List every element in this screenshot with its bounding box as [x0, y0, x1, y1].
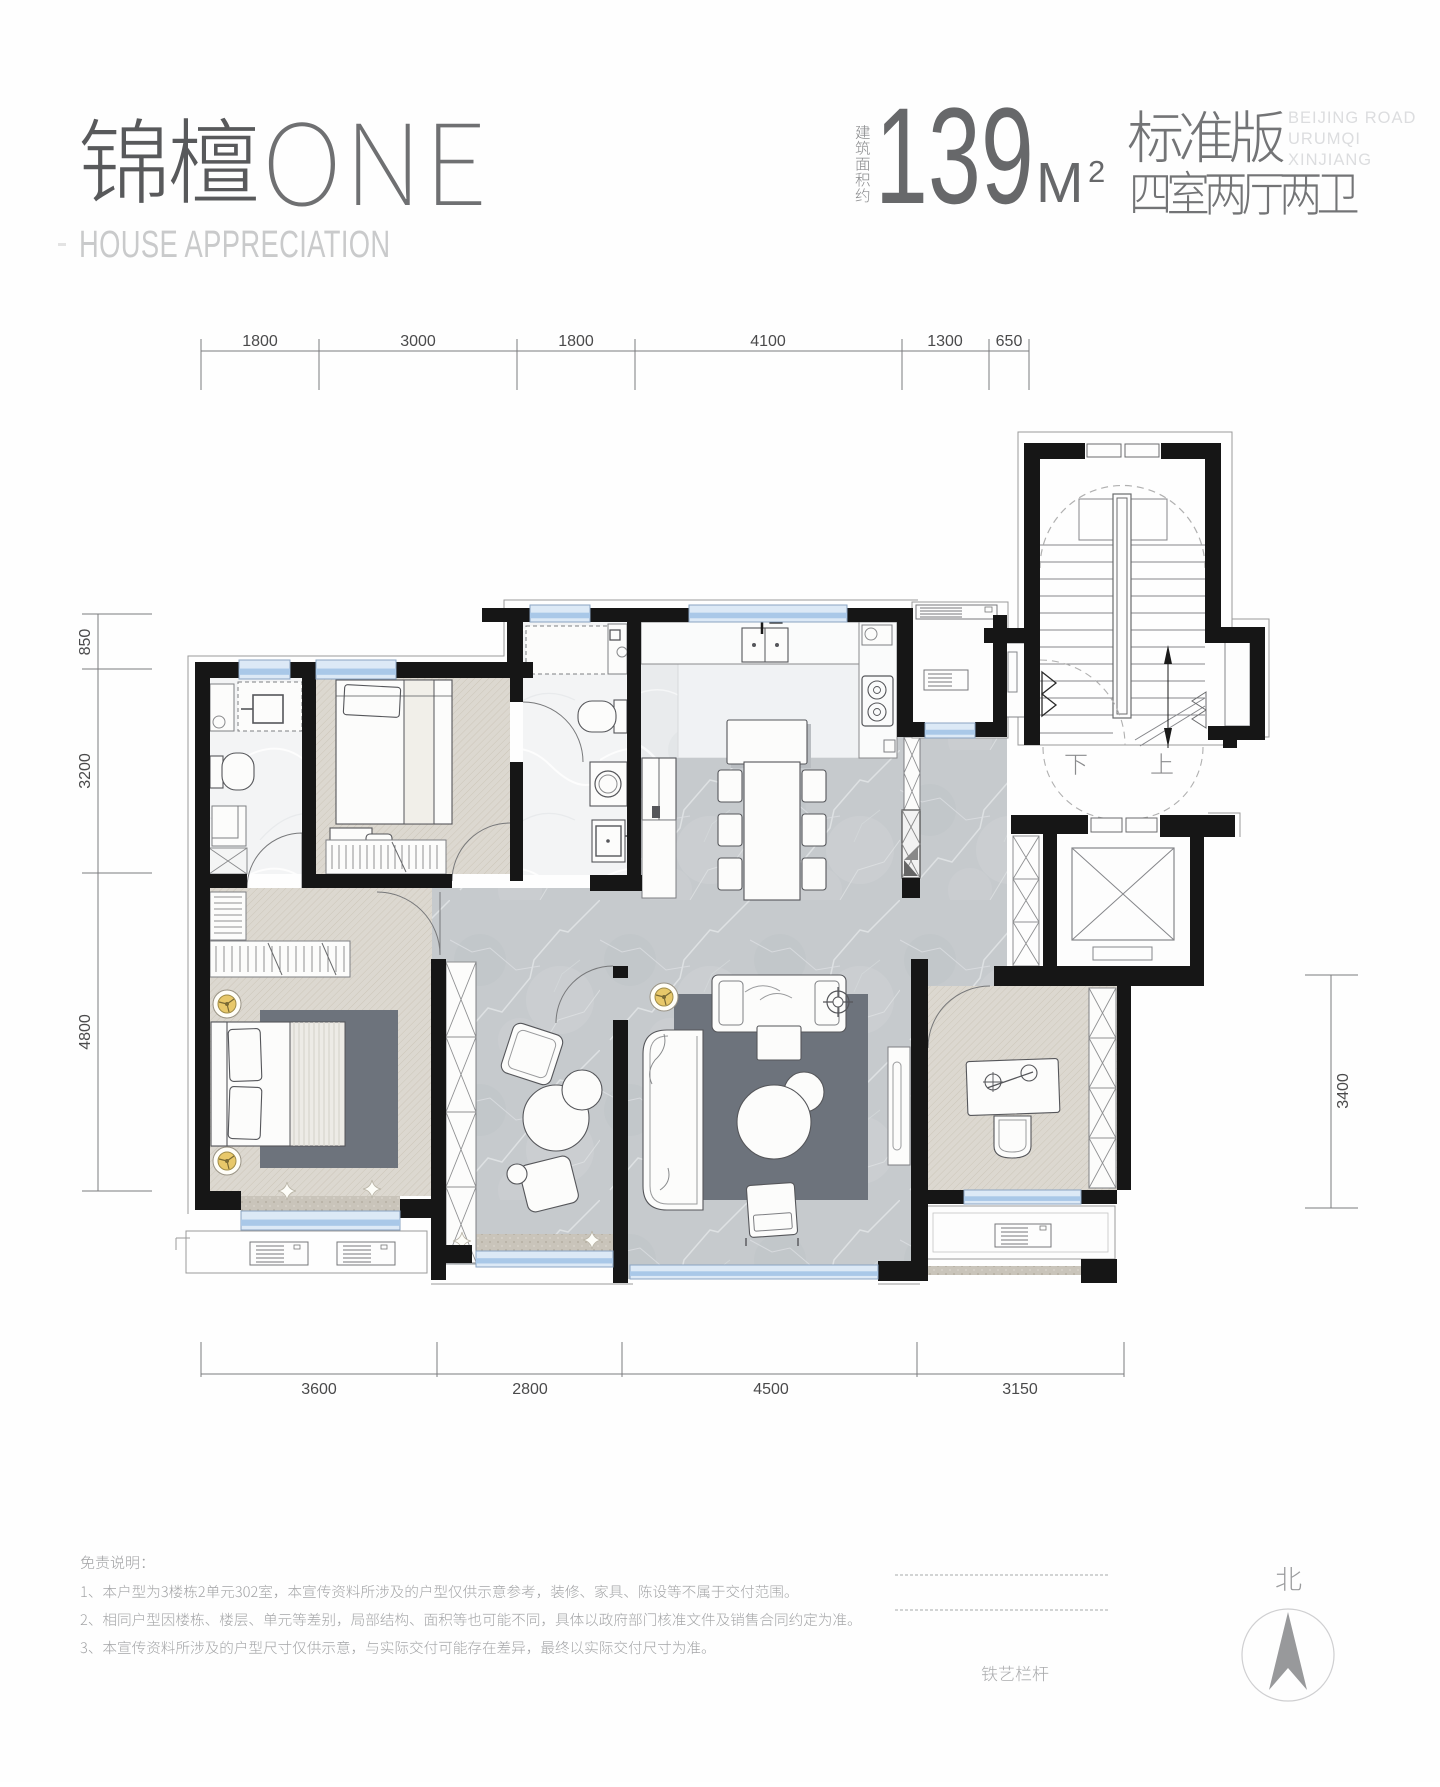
svg-text:4800: 4800 — [77, 1014, 94, 1050]
svg-text:650: 650 — [996, 333, 1023, 350]
svg-text:139: 139 — [875, 79, 1034, 232]
svg-text:3000: 3000 — [400, 333, 436, 350]
svg-text:3200: 3200 — [77, 753, 94, 789]
svg-text:1800: 1800 — [558, 333, 594, 350]
svg-text:HOUSE APPRECIATION: HOUSE APPRECIATION — [79, 224, 391, 266]
svg-text:3400: 3400 — [1335, 1073, 1352, 1109]
svg-text:M: M — [1036, 151, 1083, 215]
svg-text:1300: 1300 — [927, 333, 963, 350]
svg-text:1800: 1800 — [242, 333, 278, 350]
svg-text:3150: 3150 — [1002, 1381, 1038, 1398]
svg-text:URUMQI: URUMQI — [1288, 130, 1361, 148]
svg-text:4500: 4500 — [753, 1381, 789, 1398]
svg-text:2800: 2800 — [512, 1381, 548, 1398]
svg-text:BEIJING ROAD: BEIJING ROAD — [1288, 109, 1416, 127]
svg-text:3600: 3600 — [301, 1381, 337, 1398]
svg-text:4100: 4100 — [750, 333, 786, 350]
svg-text:XINJIANG: XINJIANG — [1288, 151, 1372, 169]
svg-text:850: 850 — [77, 629, 94, 656]
svg-text:2: 2 — [1088, 154, 1105, 189]
